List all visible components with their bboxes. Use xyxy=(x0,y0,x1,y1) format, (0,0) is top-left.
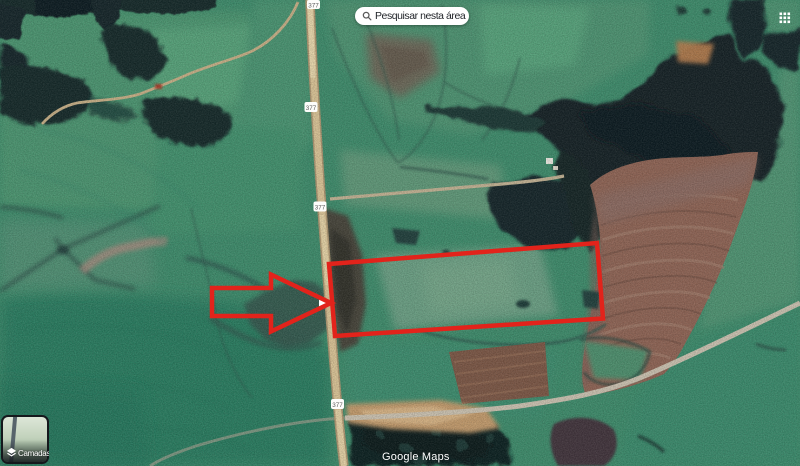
svg-text:377: 377 xyxy=(332,402,343,409)
svg-text:377: 377 xyxy=(315,205,326,212)
svg-text:377: 377 xyxy=(306,105,317,112)
svg-text:377: 377 xyxy=(308,3,319,10)
